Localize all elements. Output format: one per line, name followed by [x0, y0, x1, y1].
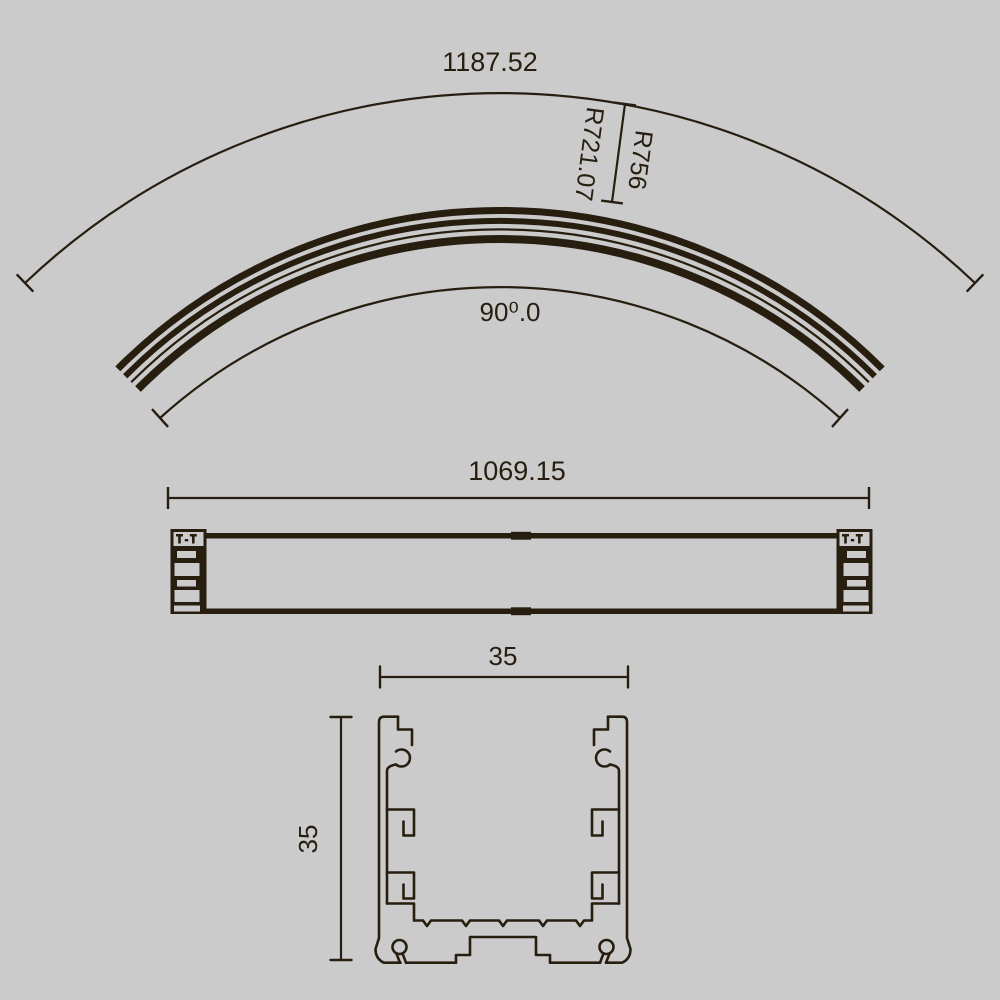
outer-arc-dimension-line [25, 93, 975, 283]
radius-inner-label: R721.07 [569, 105, 609, 202]
section-left-hook-upper [387, 810, 414, 836]
section-serrated-base [387, 904, 619, 927]
section-left-screw-boss [396, 750, 410, 767]
profile-bar-joint-seam-bottom [511, 607, 531, 615]
section-right-hook-upper [592, 810, 619, 836]
straight-profile-side-view [168, 487, 873, 615]
section-left-screw-port [393, 940, 407, 954]
technical-drawing: 1187.52 R756 R721.07 90⁰.0 1069.15 35 35 [0, 0, 1000, 1000]
height-dimension-label: 35 [293, 825, 323, 854]
dimension-labels: 1187.52 R756 R721.07 90⁰.0 1069.15 35 35 [293, 47, 658, 853]
width-dimension-label: 35 [489, 641, 518, 671]
section-left-hook-lower [387, 873, 414, 899]
left-connector-slots [174, 532, 204, 612]
arc-length-dimension-label: 1187.52 [442, 47, 538, 77]
radius-outer-label: R756 [622, 129, 658, 192]
section-right-top-notch [594, 717, 608, 745]
curved-profile-view [17, 93, 984, 427]
radius-dimension-tick-top [614, 103, 636, 106]
right-connector-slots [840, 532, 870, 612]
section-bottom-channel [406, 937, 600, 963]
profile-bar-joint-seam-top [511, 532, 531, 540]
section-left-inner-wall [387, 765, 396, 904]
radius-dimension-tick-bottom [601, 201, 623, 204]
section-right-screw-port [600, 940, 614, 954]
profile-arc-band-outer [118, 210, 882, 368]
section-right-inner-wall [610, 765, 619, 904]
section-right-hook-lower [592, 873, 619, 899]
angle-dimension-label: 90⁰.0 [479, 297, 540, 327]
section-right-screw-boss [596, 750, 610, 767]
section-left-top-notch [398, 717, 412, 745]
length-dimension-label: 1069.15 [468, 456, 566, 486]
profile-cross-section-view [331, 667, 631, 963]
